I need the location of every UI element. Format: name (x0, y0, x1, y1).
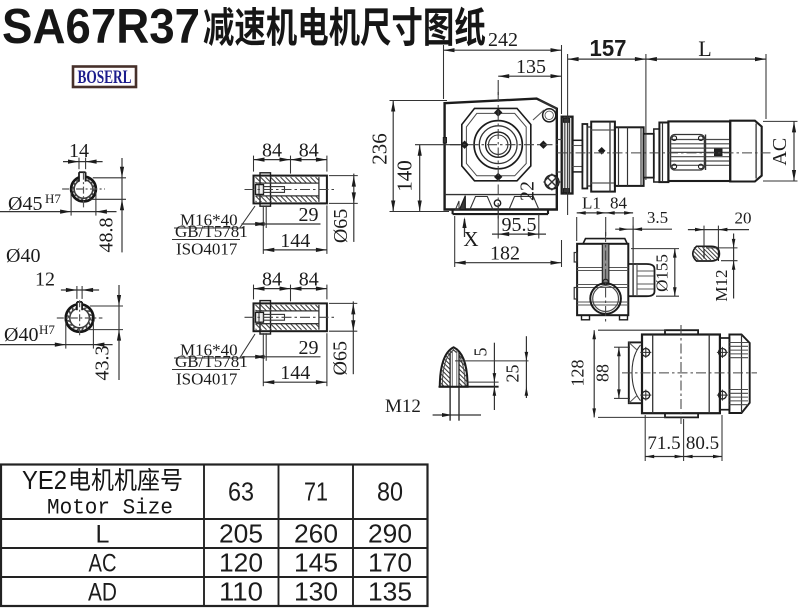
svg-text:157: 157 (590, 35, 627, 61)
svg-text:48.8: 48.8 (96, 218, 118, 253)
svg-text:290: 290 (368, 519, 412, 549)
svg-text:95.5: 95.5 (502, 214, 537, 236)
svg-text:L: L (96, 521, 110, 549)
svg-text:YE2: YE2 (22, 465, 67, 495)
svg-text:L1: L1 (582, 194, 601, 213)
svg-text:120: 120 (219, 548, 263, 578)
svg-text:20: 20 (735, 209, 752, 228)
svg-text:SA67R37: SA67R37 (2, 0, 200, 54)
svg-text:205: 205 (219, 519, 263, 549)
svg-text:12: 12 (35, 269, 55, 291)
svg-text:Ø155: Ø155 (653, 254, 672, 292)
svg-text:22: 22 (517, 181, 539, 201)
svg-text:14: 14 (69, 140, 89, 162)
svg-text:Ø40: Ø40 (6, 245, 40, 267)
svg-text:25: 25 (503, 365, 523, 383)
svg-text:H7: H7 (39, 322, 55, 337)
svg-text:84: 84 (299, 140, 319, 162)
svg-text:135: 135 (516, 56, 546, 78)
svg-text:144: 144 (280, 362, 310, 384)
svg-text:242: 242 (488, 29, 518, 51)
svg-text:144: 144 (280, 230, 310, 252)
svg-text:29: 29 (299, 337, 319, 359)
svg-text:ISO4017: ISO4017 (176, 240, 238, 259)
svg-text:L: L (698, 36, 711, 61)
svg-text:ISO4017: ISO4017 (176, 370, 238, 389)
svg-text:Motor Size: Motor Size (47, 496, 173, 521)
svg-text:H7: H7 (45, 191, 61, 206)
svg-text:Ø65: Ø65 (329, 341, 351, 375)
svg-text:84: 84 (610, 194, 628, 213)
svg-text:71.5: 71.5 (647, 433, 680, 454)
svg-text:182: 182 (490, 243, 520, 265)
svg-text:X: X (463, 227, 478, 251)
svg-text:GB/T5781: GB/T5781 (175, 352, 248, 371)
svg-text:135: 135 (368, 577, 412, 607)
svg-text:130: 130 (294, 577, 338, 607)
svg-text:80.5: 80.5 (686, 433, 719, 454)
svg-text:88: 88 (593, 364, 613, 382)
svg-text:236: 236 (368, 133, 392, 165)
svg-text:63: 63 (228, 477, 254, 507)
svg-text:AC: AC (89, 550, 117, 578)
svg-text:110: 110 (219, 577, 263, 607)
svg-text:M12: M12 (712, 269, 731, 301)
svg-text:29: 29 (299, 204, 319, 226)
svg-text:71: 71 (304, 477, 328, 507)
svg-text:84: 84 (262, 140, 282, 162)
svg-text:5: 5 (471, 348, 491, 357)
svg-text:140: 140 (393, 160, 417, 192)
svg-text:128: 128 (568, 360, 588, 387)
svg-text:145: 145 (294, 548, 338, 578)
svg-text:AC: AC (769, 138, 791, 166)
svg-text:GB/T5781: GB/T5781 (175, 222, 248, 241)
svg-text:43.3: 43.3 (92, 346, 114, 381)
svg-text:260: 260 (294, 519, 338, 549)
svg-text:AD: AD (88, 579, 117, 607)
svg-text:Ø40: Ø40 (4, 324, 38, 346)
svg-text:80: 80 (377, 477, 403, 507)
svg-text:M12: M12 (385, 396, 421, 417)
svg-text:84: 84 (299, 269, 319, 291)
svg-text:84: 84 (262, 269, 282, 291)
svg-text:3.5: 3.5 (647, 208, 668, 227)
svg-text:170: 170 (368, 548, 412, 578)
svg-text:BOSERL: BOSERL (78, 68, 132, 88)
svg-text:Ø65: Ø65 (330, 209, 352, 243)
